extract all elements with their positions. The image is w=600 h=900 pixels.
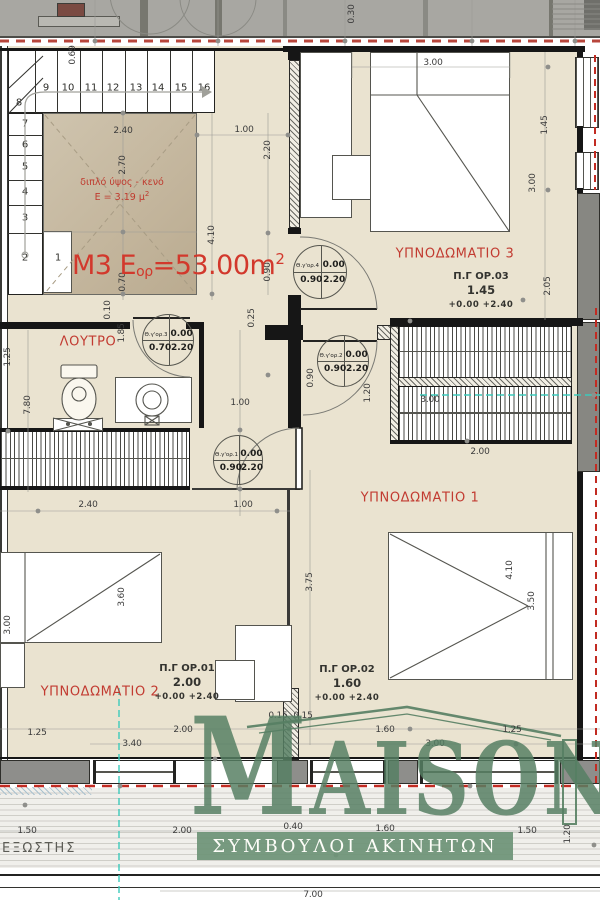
dim: 0.25 [247, 308, 257, 327]
stair-step-number: 16 [198, 83, 211, 94]
window-right-lower [575, 152, 599, 190]
dim: 3.00 [528, 173, 538, 192]
bed-bedroom1 [388, 532, 573, 680]
strip-corner-block [584, 0, 600, 30]
dim: 2.70 [118, 155, 128, 174]
washbasin-counter [115, 377, 192, 423]
stair-step-number: 2 [22, 253, 28, 264]
dim: 1.00 [234, 125, 253, 135]
property-line-band [0, 38, 600, 44]
dim: 3.75 [305, 572, 315, 591]
dim: 3.00 [423, 58, 442, 68]
void-note-line2: E = 3.19 μ2 [95, 190, 150, 203]
stair-top-run [8, 50, 215, 113]
stair-step-number: 5 [22, 162, 28, 173]
stair-step-number: 4 [22, 187, 28, 198]
dim: 1.00 [233, 500, 252, 510]
nightstand-bedroom2 [0, 643, 25, 688]
right-pier-lower [577, 322, 600, 472]
maison-tagline: ΣΥΜΒΟΥΛΟΙ ΑΚΙΝΗΤΩΝ [212, 836, 497, 857]
stair-step-number: 7 [22, 119, 28, 130]
wardrobe-bathroom [0, 431, 190, 487]
chair-bedroom3 [332, 155, 374, 200]
stair-step-number: 10 [62, 83, 75, 94]
dim: 3.00 [420, 395, 439, 405]
window-right-upper [575, 57, 599, 128]
dim: 4.10 [505, 560, 515, 579]
dim: 3.50 [527, 591, 537, 610]
floor-plan: 0.30 9 10 11 12 13 14 15 16 8 7 6 5 4 3 … [0, 0, 600, 900]
dim: 0.10 [103, 300, 113, 319]
dim: 1.20 [363, 383, 373, 402]
dim: 1.50 [17, 826, 36, 836]
dim: 4.10 [207, 225, 217, 244]
window-annotation-op02: Π.Γ ΟΡ.02 1.60 +0.00 +2.40 [315, 664, 380, 703]
maison-logo: MAISON [190, 699, 600, 834]
dim: 2.00 [172, 826, 191, 836]
stair-step-number: 13 [130, 83, 143, 94]
dim: 7.80 [23, 395, 33, 414]
dim: 2.00 [470, 447, 489, 457]
dim: 2.20 [263, 140, 273, 159]
bottom-pier [0, 760, 90, 784]
area-label: M3 Eορ=53.00m2 [72, 250, 284, 281]
strip-red-box [57, 3, 85, 17]
partition-wall [289, 60, 300, 228]
door-circle-1: Θ.γ'ορ.1 0.00 0.90 2.20 [213, 435, 263, 485]
room-label-bedroom2: ΥΠΝΟΔΩΜΑΤΙΟ 2 [41, 685, 160, 700]
stair-step-number: 6 [22, 140, 28, 151]
stair-step-number: 8 [16, 98, 22, 109]
void-note-line1: διπλό ύψος - κενό [80, 177, 164, 188]
stair-step-number: 9 [43, 83, 49, 94]
strip-counter [38, 16, 120, 27]
room-label-bedroom1: ΥΠΝΟΔΩΜΑΤΙΟ 1 [361, 491, 480, 506]
dim: 1.25 [3, 347, 13, 366]
dim: 3.00 [3, 615, 13, 634]
maison-logo-rest: AISON [310, 729, 600, 829]
wardrobe-band-upper [398, 326, 572, 378]
room-label-bedroom3: ΥΠΝΟΔΩΜΑΤΙΟ 3 [396, 247, 515, 262]
room-label-bathroom: ΛΟΥΤΡΟ [60, 335, 117, 350]
door-circle-4: Θ.γ'ορ.4 0.00 0.90 2.20 [293, 245, 347, 299]
dim: 1.85 [117, 323, 127, 342]
strip-pier [549, 0, 553, 36]
dim: 1.25 [27, 728, 46, 738]
strip-pier [215, 0, 222, 36]
dim: 1.45 [540, 115, 550, 134]
dim: 2.40 [113, 126, 132, 136]
dim: 1.00 [230, 398, 249, 408]
maison-tagline-banner: ΣΥΜΒΟΥΛΟΙ ΑΚΙΝΗΤΩΝ [197, 832, 513, 860]
dim: 3.40 [122, 739, 141, 749]
right-pier-upper [577, 193, 600, 320]
stair-step-number: 3 [22, 213, 28, 224]
dim: 0.69 [68, 45, 78, 64]
bed-bedroom2 [0, 552, 162, 643]
door-circle-2: Θ.γ'ορ.2 0.00 0.90 2.20 [317, 335, 369, 387]
stair-step-number: 1 [55, 253, 61, 264]
dim: 0.90 [306, 368, 316, 387]
window-op01 [93, 760, 176, 784]
balcony-label: ΕΞΩΣΤΗΣ [2, 841, 77, 856]
dim-strip-030: 0.30 [347, 4, 357, 23]
maison-logo-m: M [190, 699, 310, 834]
window-annotation-op03: Π.Γ ΟΡ.03 1.45 +0.00 +2.40 [449, 271, 514, 310]
stair-step-number: 14 [152, 83, 165, 94]
stair-step-number: 11 [85, 83, 98, 94]
dim: 2.05 [543, 276, 553, 295]
door-circle-3: Θ.γ'ορ.3 0.00 0.70 2.20 [142, 314, 194, 366]
dim: 3.60 [117, 587, 127, 606]
dim: 2.40 [78, 500, 97, 510]
strip-pier [283, 0, 287, 36]
strip-pier [423, 0, 428, 36]
stair-step-number: 12 [107, 83, 120, 94]
dim: 7.00 [303, 890, 322, 900]
balcony-drip-hatch [0, 787, 92, 795]
strip-pier [140, 0, 148, 36]
bed-bedroom3 [370, 52, 510, 232]
stair-step-number: 15 [175, 83, 188, 94]
shower-tray [53, 418, 103, 431]
